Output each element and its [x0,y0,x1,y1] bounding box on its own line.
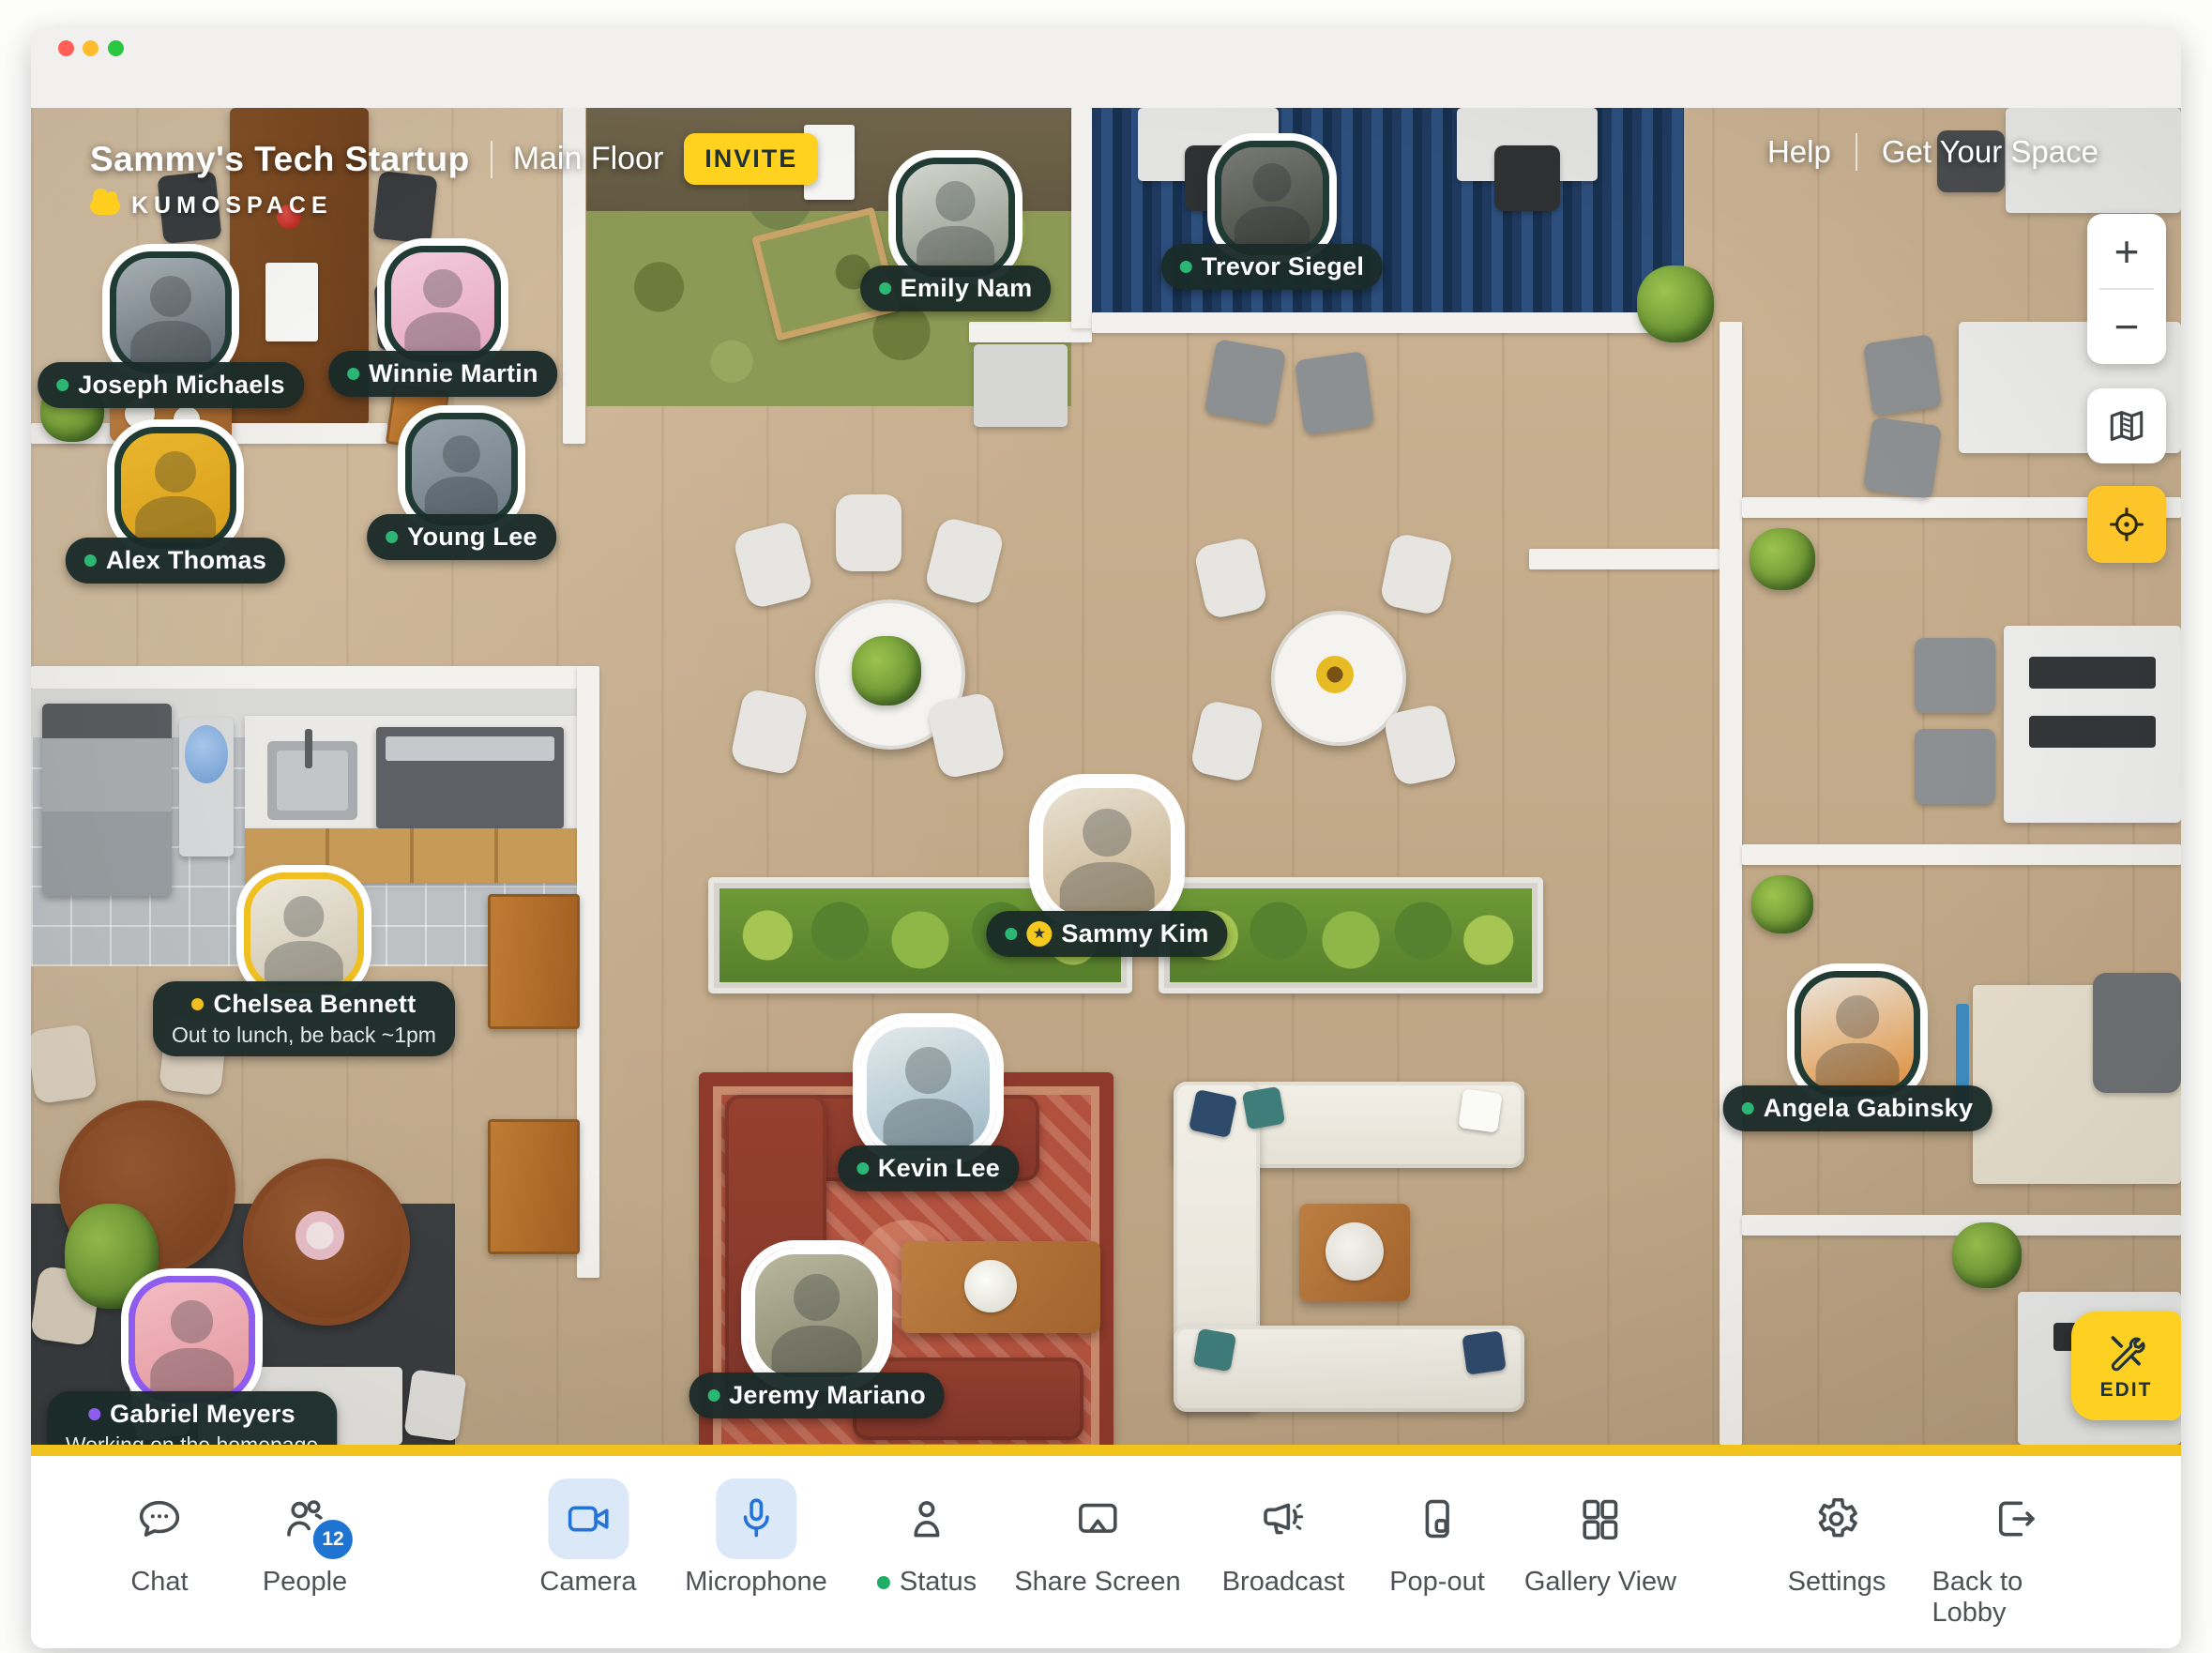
toolbar-item-label: Settings [1788,1567,1886,1598]
name-label: Winnie Martin [328,351,557,397]
avatar-silhouette [935,181,976,221]
toolbar-item-label: Status [877,1567,977,1598]
person-kevin-lee[interactable]: Kevin Lee [860,1021,996,1157]
presence-dot [88,1408,100,1420]
minimap-button[interactable] [2087,388,2166,463]
avatar-silhouette [905,1047,952,1094]
person-name: Jeremy Mariano [729,1381,926,1410]
name-label: Angela Gabinsky [1723,1085,1992,1131]
brand: KUMOSPACE [90,192,333,220]
avatar-video[interactable] [114,427,236,549]
avatar-silhouette [794,1274,841,1321]
toolbar-item-label: Back to Lobby [1932,1567,2098,1629]
avatar-silhouette [1083,809,1131,857]
name-label: Emily Nam [860,265,1052,311]
toolbar-item-label: People [263,1567,347,1598]
person-trevor-siegel[interactable]: Trevor Siegel [1215,141,1329,255]
toolbar-item-broadcast[interactable]: Broadcast [1222,1479,1345,1598]
toolbar-item-label: Broadcast [1222,1567,1345,1598]
zoom-out-button[interactable]: − [2087,290,2166,364]
toolbar-item-label: Share Screen [1014,1567,1180,1598]
avatar-video[interactable] [860,1021,996,1157]
person-name: Gabriel Meyers [110,1400,295,1429]
kumospace-cloud-icon [90,197,120,215]
avatar-video[interactable] [1037,781,1177,922]
person-status-text: Working on the homepage [66,1433,318,1445]
avatar-silhouette [423,269,462,309]
toolbar-item-gallery-view[interactable]: Gallery View [1524,1479,1676,1598]
help-link[interactable]: Help [1767,134,1831,170]
toolbar-item-chat[interactable]: Chat [119,1479,200,1598]
status-icon [886,1479,967,1559]
person-winnie-martin[interactable]: Winnie Martin [385,246,501,362]
pop-out-icon [1397,1479,1477,1559]
header: Sammy's Tech Startup Main Floor INVITE [90,133,818,185]
avatar-silhouette [443,435,480,473]
host-star-icon: ★ [1026,921,1052,947]
presence-dot [856,1162,869,1175]
presence-dot [1005,928,1017,940]
person-name: Chelsea Bennett [213,990,416,1019]
toolbar-item-label: Camera [539,1567,636,1598]
avatar-video[interactable] [385,246,501,362]
gallery-view-icon [1560,1479,1641,1559]
avatar-video[interactable] [129,1276,255,1403]
person-alex-thomas[interactable]: Alex Thomas [114,427,236,549]
floor-name: Main Floor [513,141,664,177]
presence-dot [1742,1102,1754,1115]
name-label: Gabriel MeyersWorking on the homepage [47,1391,337,1445]
person-young-lee[interactable]: Young Lee [405,413,518,525]
people-count-badge: 12 [310,1516,356,1563]
avatar-silhouette [1252,163,1291,202]
avatar-video[interactable] [749,1248,885,1384]
get-your-space-link[interactable]: Get Your Space [1882,134,2098,170]
person-name: Alex Thomas [106,546,266,575]
presence-dot [347,368,359,380]
toolbar-item-label: Microphone [685,1567,827,1598]
back-to-lobby-icon [1975,1479,2055,1559]
person-name: Trevor Siegel [1202,252,1364,281]
toolbar-item-microphone[interactable]: Microphone [685,1479,827,1598]
person-jeremy-mariano[interactable]: Jeremy Mariano [749,1248,885,1384]
avatar-video[interactable] [1215,141,1329,255]
brand-name: KUMOSPACE [131,192,333,220]
edit-space-button[interactable]: EDIT [2071,1312,2181,1420]
toolbar-item-status[interactable]: Status [877,1479,977,1598]
person-name: Angela Gabinsky [1764,1094,1974,1123]
toolbar-item-share-screen[interactable]: Share Screen [1014,1479,1180,1598]
presence-dot [1180,261,1192,273]
status-presence-dot [877,1576,890,1589]
name-label: Young Lee [367,514,556,560]
name-label: Kevin Lee [838,1145,1019,1191]
name-label: Jeremy Mariano [689,1372,945,1418]
settings-icon [1796,1479,1877,1559]
header-right: Help Get Your Space [1767,133,2098,171]
avatar-silhouette [155,451,196,493]
avatar-video[interactable] [405,413,518,525]
window-titlebar [31,28,2181,108]
app-window: Joseph MichaelsWinnie MartinAlex ThomasY… [31,28,2181,1648]
invite-button[interactable]: INVITE [684,133,818,185]
screen: Joseph MichaelsWinnie MartinAlex ThomasY… [0,0,2212,1653]
people-icon: 12 [265,1479,345,1559]
toolbar: Chat12PeopleCameraMicrophoneStatusShare … [31,1456,2181,1648]
name-label: Trevor Siegel [1161,244,1383,290]
edit-button-label: EDIT [2100,1379,2153,1402]
person-angela-gabinsky[interactable]: Angela Gabinsky [1795,971,1920,1097]
minimize-window-button[interactable] [83,40,98,56]
toolbar-item-settings[interactable]: Settings [1788,1479,1886,1598]
share-screen-icon [1057,1479,1138,1559]
name-label: Joseph Michaels [38,362,304,408]
avatar-silhouette [150,276,191,317]
toolbar-item-label: Gallery View [1524,1567,1676,1598]
avatar-silhouette [171,1300,214,1343]
person-name: Young Lee [407,523,538,552]
toolbar-item-people[interactable]: 12People [263,1479,347,1598]
chat-icon [119,1479,200,1559]
toolbar-item-back-to-lobby[interactable]: Back to Lobby [1932,1479,2098,1629]
people-layer: Joseph MichaelsWinnie MartinAlex ThomasY… [31,108,2181,1445]
space-name: Sammy's Tech Startup [90,140,470,179]
presence-dot [84,554,97,567]
person-gabriel-meyers[interactable]: Gabriel MeyersWorking on the homepage [129,1276,255,1403]
locate-me-button[interactable] [2087,486,2166,563]
close-window-button[interactable] [58,40,74,56]
zoom-panel: + − [2087,214,2166,364]
person-name: Kevin Lee [878,1154,1000,1183]
person-name: Sammy Kim [1061,919,1208,948]
accent-strip [31,1445,2181,1456]
person-joseph-michaels[interactable]: Joseph Michaels [110,251,232,373]
camera-icon [548,1479,629,1559]
broadcast-icon [1243,1479,1324,1559]
avatar-silhouette [283,896,324,936]
header-divider [1856,133,1857,171]
header-divider [491,141,492,178]
person-name: Emily Nam [901,274,1033,303]
toolbar-item-pop-out[interactable]: Pop-out [1389,1479,1485,1598]
name-label: Chelsea BennettOut to lunch, be back ~1p… [153,981,455,1056]
person-emily-nam[interactable]: Emily Nam [896,158,1015,277]
person-chelsea-bennett[interactable]: Chelsea BennettOut to lunch, be back ~1p… [244,872,364,993]
person-sammy-kim[interactable]: ★Sammy Kim [1037,781,1177,922]
presence-dot [879,282,891,295]
avatar-video[interactable] [896,158,1015,277]
zoom-in-button[interactable]: + [2087,214,2166,288]
avatar-video[interactable] [110,251,232,373]
microphone-icon [716,1479,796,1559]
presence-dot [191,998,204,1010]
name-label: ★Sammy Kim [986,911,1227,957]
presence-dot [707,1389,720,1402]
toolbar-item-camera[interactable]: Camera [539,1479,636,1598]
presence-dot [56,379,68,391]
toolbar-item-label: Pop-out [1389,1567,1485,1598]
avatar-video[interactable] [1795,971,1920,1097]
avatar-silhouette [1836,995,1879,1039]
toolbar-item-label: Chat [130,1567,188,1598]
person-name: Winnie Martin [369,359,538,388]
virtual-office-map[interactable]: Joseph MichaelsWinnie MartinAlex ThomasY… [31,108,2181,1445]
tools-icon [2105,1330,2148,1373]
avatar-video[interactable] [244,872,364,993]
zoom-window-button[interactable] [108,40,124,56]
presence-dot [386,531,398,543]
person-status-text: Out to lunch, be back ~1pm [172,1023,436,1048]
name-label: Alex Thomas [66,538,285,584]
person-name: Joseph Michaels [78,371,285,400]
